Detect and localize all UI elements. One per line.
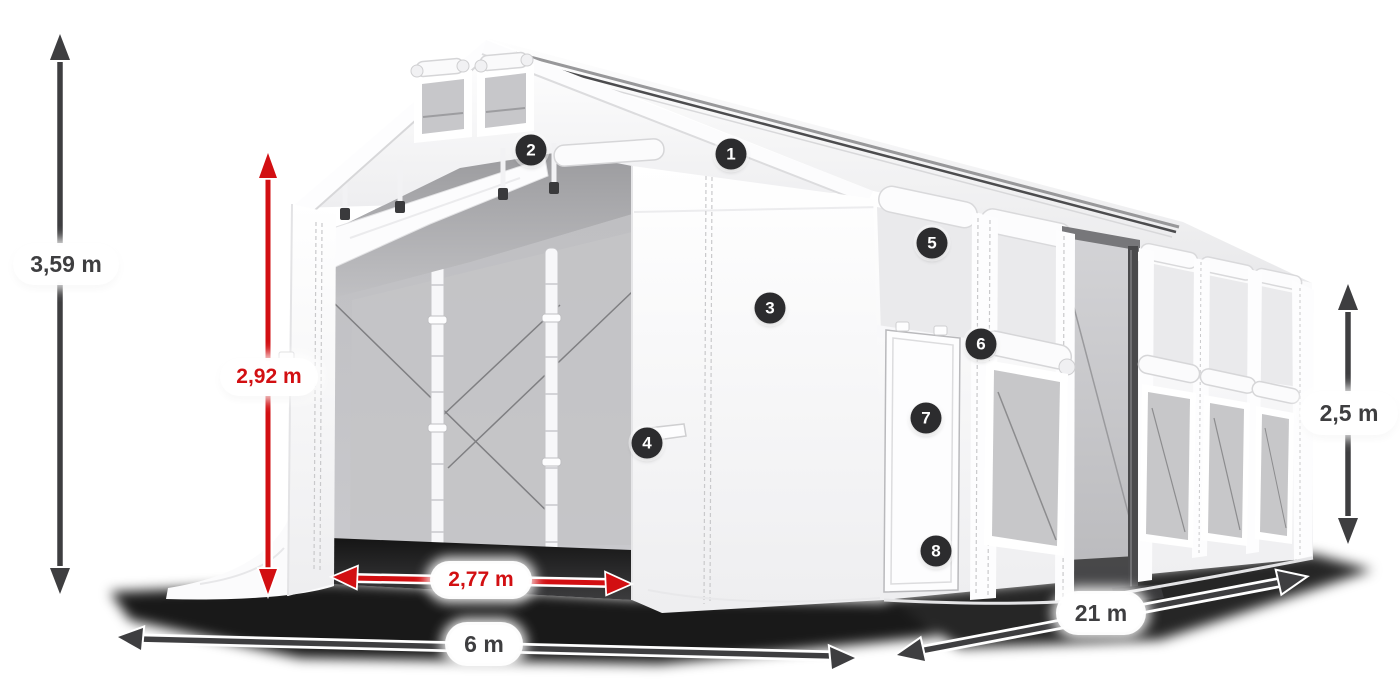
feature-marker-6: 6 xyxy=(966,329,997,360)
dimension-label-width: 6 m xyxy=(448,625,520,663)
side-window xyxy=(980,329,1075,556)
dimension-label-entrance-width: 2,77 m xyxy=(433,564,529,596)
feature-marker-8: 8 xyxy=(921,536,952,567)
telescopic-leg xyxy=(428,250,447,560)
feature-marker-1: 1 xyxy=(716,139,747,170)
feature-marker-3: 3 xyxy=(755,293,786,324)
tent-illustration xyxy=(0,0,1400,700)
feature-marker-4: 4 xyxy=(632,428,663,459)
feature-marker-2: 2 xyxy=(516,135,547,166)
front-right-door-panel xyxy=(632,166,884,613)
tent-dimension-diagram: 3,59 m 2,92 m 2,77 m 6 m 21 m 2,5 m 1 2 … xyxy=(0,0,1400,700)
dimension-label-side-height: 2,5 m xyxy=(1303,394,1395,432)
gable-vent-window xyxy=(475,52,534,137)
front-left-corner-column xyxy=(166,204,336,599)
dimension-label-entrance-height: 2,92 m xyxy=(223,361,315,393)
gable-vent-window xyxy=(411,58,472,143)
dim-arrow-total-height xyxy=(50,34,70,594)
doorway-pole xyxy=(1128,246,1138,598)
dimension-label-length: 21 m xyxy=(1059,594,1143,632)
dimension-label-total-height: 3,59 m xyxy=(16,246,116,282)
feature-marker-7: 7 xyxy=(911,403,942,434)
feature-marker-5: 5 xyxy=(917,228,948,259)
telescopic-leg xyxy=(542,248,561,586)
